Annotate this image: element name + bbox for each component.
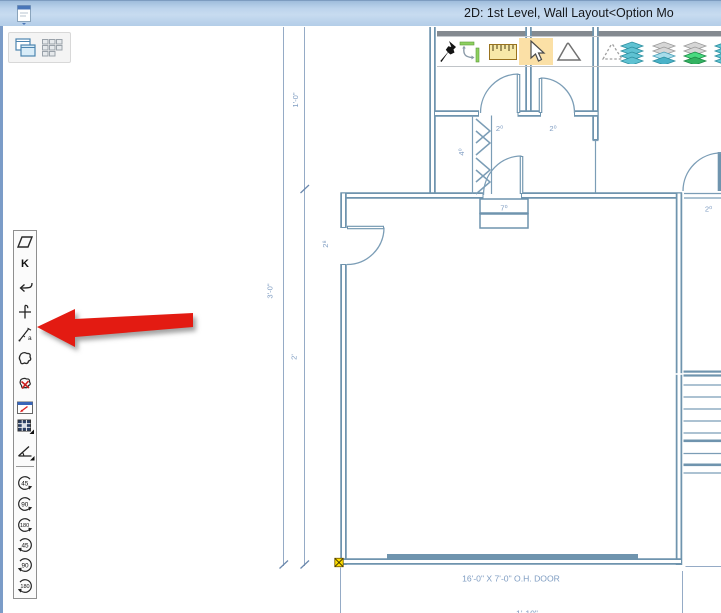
garage-overhead-door	[387, 554, 638, 559]
layers-partial-icon[interactable]	[712, 40, 721, 64]
pushpin-icon[interactable]	[439, 40, 457, 64]
blob-delete-tool-icon[interactable]	[15, 374, 35, 394]
title-bar[interactable]: 2D: 1st Level, Wall Layout<Option Mo	[0, 0, 721, 26]
window-title: 2D: 1st Level, Wall Layout<Option Mo	[464, 6, 674, 20]
k-tool-icon[interactable]: K	[15, 254, 35, 274]
rotate-cw-90-label: 90	[21, 562, 29, 569]
bifold-closet-doors	[473, 116, 492, 195]
grid-tool-icon[interactable]	[15, 416, 35, 436]
label-garage-step: 7⁰	[500, 204, 507, 213]
door-label-hall-left: 2⁰	[496, 124, 503, 133]
dim-label-upper: 1'-0"	[291, 92, 300, 107]
doors	[347, 74, 721, 265]
door-label-hall-right: 2⁰	[549, 124, 556, 133]
rotate-ccw-45-label: 45	[21, 480, 29, 487]
annotation-arrow-shape	[37, 309, 193, 347]
rotate-180-cw-icon[interactable]: 180	[15, 576, 35, 596]
rotate-45-ccw-icon[interactable]: 45	[15, 473, 35, 493]
staircase	[684, 371, 721, 474]
rotate-90-cw-icon[interactable]: 90	[15, 555, 35, 575]
rotate-ccw-180-label: 180	[20, 523, 29, 529]
dim-label-outer: 3'-0"	[266, 283, 275, 298]
select-arrow-icon[interactable]	[526, 40, 546, 64]
dim-label-bottom-partial: 1'-10"	[516, 609, 538, 613]
door-label-right-room: 2⁰	[705, 205, 712, 214]
parallelogram-tool-icon[interactable]	[15, 232, 35, 252]
tile-windows-icon[interactable]	[42, 39, 63, 63]
door-label-closet: 4⁰	[457, 148, 466, 155]
angle-tool-icon[interactable]	[15, 441, 35, 461]
rotate-cw-180-label: 180	[20, 584, 29, 590]
walls	[341, 27, 721, 565]
window-control-box	[8, 32, 71, 63]
rotate-cw-45-label: 45	[21, 542, 29, 549]
selected-endpoint-marker[interactable]	[335, 558, 343, 566]
dialog-tool-icon[interactable]	[15, 398, 35, 418]
annotation-arrow	[25, 300, 210, 367]
k-tool-label: K	[15, 254, 35, 274]
cascade-windows-icon[interactable]	[15, 38, 37, 63]
hook-arrow-tool-icon[interactable]	[15, 278, 35, 298]
window-left-border	[0, 26, 3, 613]
door-label-garage-side: 2⁸	[321, 240, 330, 247]
dim-label-lower: 2'	[290, 354, 299, 360]
rotate-45-cw-icon[interactable]: 45	[15, 535, 35, 555]
garage-door-annotation: 16'-0" X 7'-0" O.H. DOOR	[462, 574, 560, 584]
polygon-tool-icon[interactable]	[556, 40, 582, 64]
tool-separator	[16, 466, 34, 470]
rotate-180-ccw-icon[interactable]: 180	[15, 515, 35, 535]
rotate-resize-icon[interactable]	[459, 40, 483, 64]
app-window: { "window": { "title": "2D: 1st Level, W…	[0, 0, 721, 613]
layers-green-icon[interactable]	[681, 40, 709, 64]
rotate-ccw-90-label: 90	[21, 501, 29, 508]
rotate-90-ccw-icon[interactable]: 90	[15, 494, 35, 514]
ruler-icon[interactable]	[489, 43, 517, 67]
window-system-icon[interactable]	[17, 4, 31, 30]
layers-teal-icon[interactable]	[618, 40, 646, 64]
edit-tool-palette: K a	[13, 230, 37, 599]
layers-mixed-icon[interactable]	[650, 40, 678, 64]
